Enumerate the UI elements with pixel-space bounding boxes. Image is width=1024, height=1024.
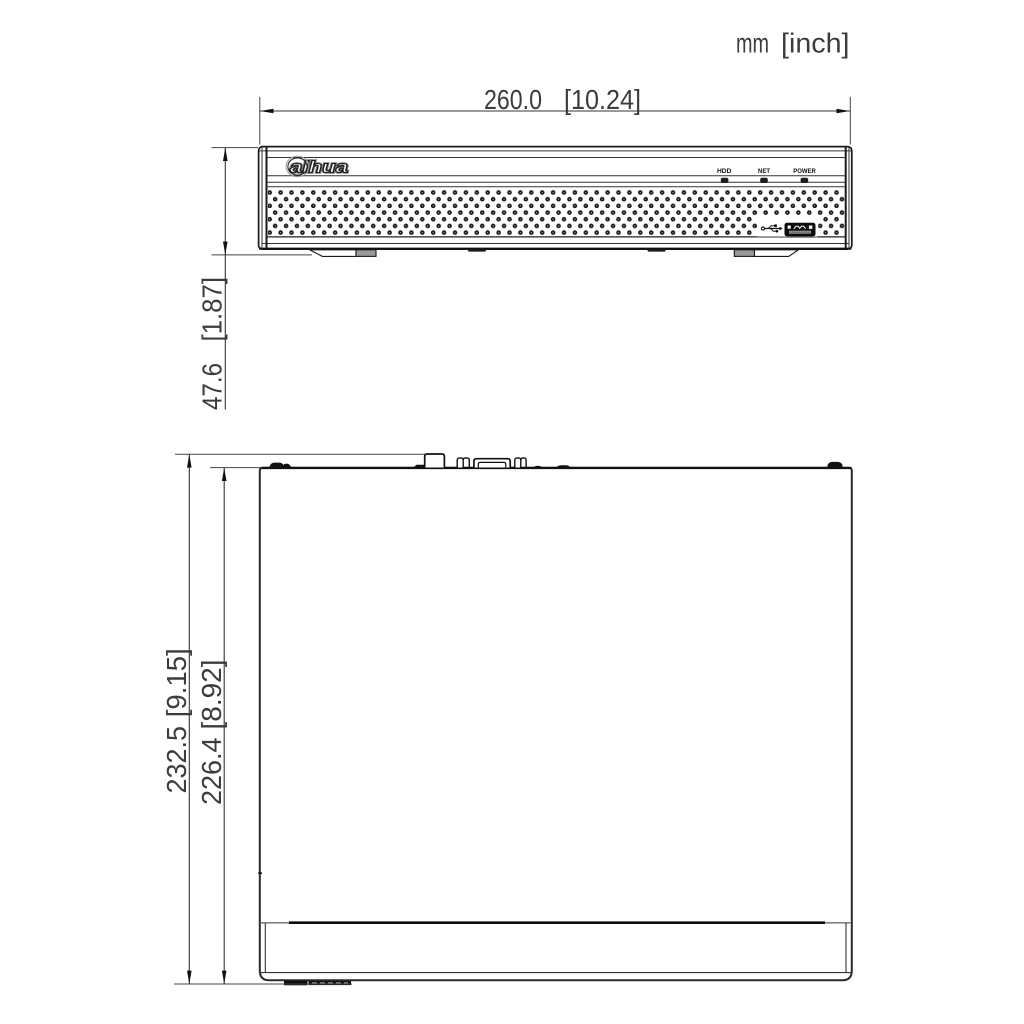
svg-text:[10.24]: [10.24] (564, 84, 641, 115)
svg-text:POWER: POWER (793, 168, 816, 175)
svg-text:47.6: 47.6 (197, 363, 228, 410)
svg-text:226.4: 226.4 (196, 738, 227, 806)
svg-text:[inch]: [inch] (781, 28, 850, 59)
svg-text:NET: NET (758, 168, 771, 175)
svg-text:[8.92]: [8.92] (196, 660, 227, 730)
svg-text:260.0: 260.0 (484, 84, 542, 115)
svg-text:HDD: HDD (717, 168, 732, 175)
svg-text:alhua: alhua (290, 158, 348, 177)
svg-text:[9.15]: [9.15] (161, 648, 192, 717)
svg-text:mm: mm (736, 28, 769, 59)
svg-text:[1.87]: [1.87] (197, 277, 228, 342)
svg-text:232.5: 232.5 (161, 726, 192, 794)
